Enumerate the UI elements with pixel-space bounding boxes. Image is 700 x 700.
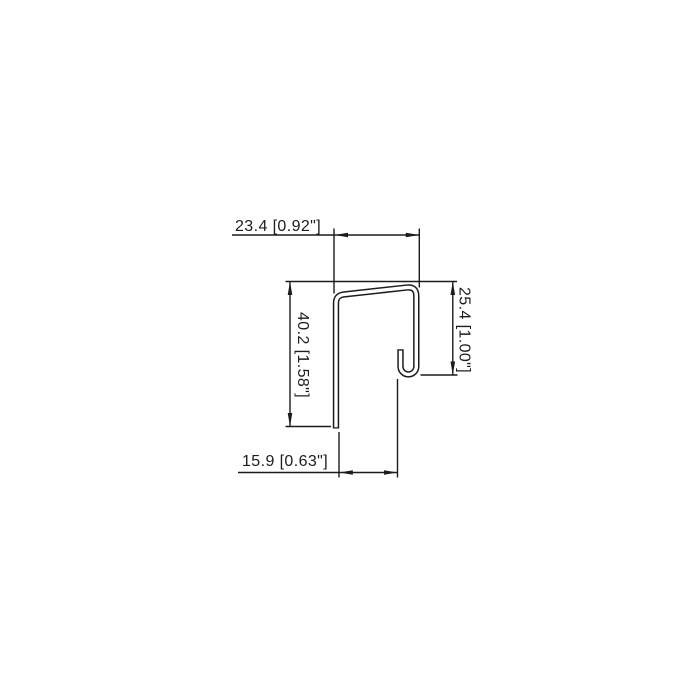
- profile-material-outline: [336, 287, 416, 428]
- drawing-canvas: 23.4 [0.92"] 40.2 [1.58"] 25.4 [1.00"]: [0, 0, 700, 700]
- profile-material-core: [336, 287, 416, 427]
- dimension-left: 40.2 [1.58"]: [286, 282, 458, 427]
- dimension-label-bottom: 15.9 [0.63"]: [242, 453, 328, 470]
- dimension-label-right: 25.4 [1.00"]: [456, 287, 473, 373]
- arrowhead-left-top: [288, 282, 293, 296]
- dimension-bottom: 15.9 [0.63"]: [238, 379, 398, 478]
- arrowhead-right-top: [451, 282, 456, 296]
- arrowhead-top-right: [406, 233, 420, 238]
- dimension-label-top: 23.4 [0.92"]: [235, 218, 321, 235]
- arrowhead-bottom-right: [384, 470, 398, 475]
- arrowhead-top-left: [335, 233, 349, 238]
- dimension-label-left: 40.2 [1.58"]: [294, 312, 311, 398]
- arrowhead-bottom-left: [339, 470, 353, 475]
- technical-drawing: 23.4 [0.92"] 40.2 [1.58"] 25.4 [1.00"]: [0, 0, 700, 700]
- profile-outline: [336, 287, 416, 428]
- dimension-right: 25.4 [1.00"]: [421, 282, 473, 376]
- arrowhead-right-bottom: [451, 362, 456, 376]
- arrowhead-left-bottom: [288, 413, 293, 427]
